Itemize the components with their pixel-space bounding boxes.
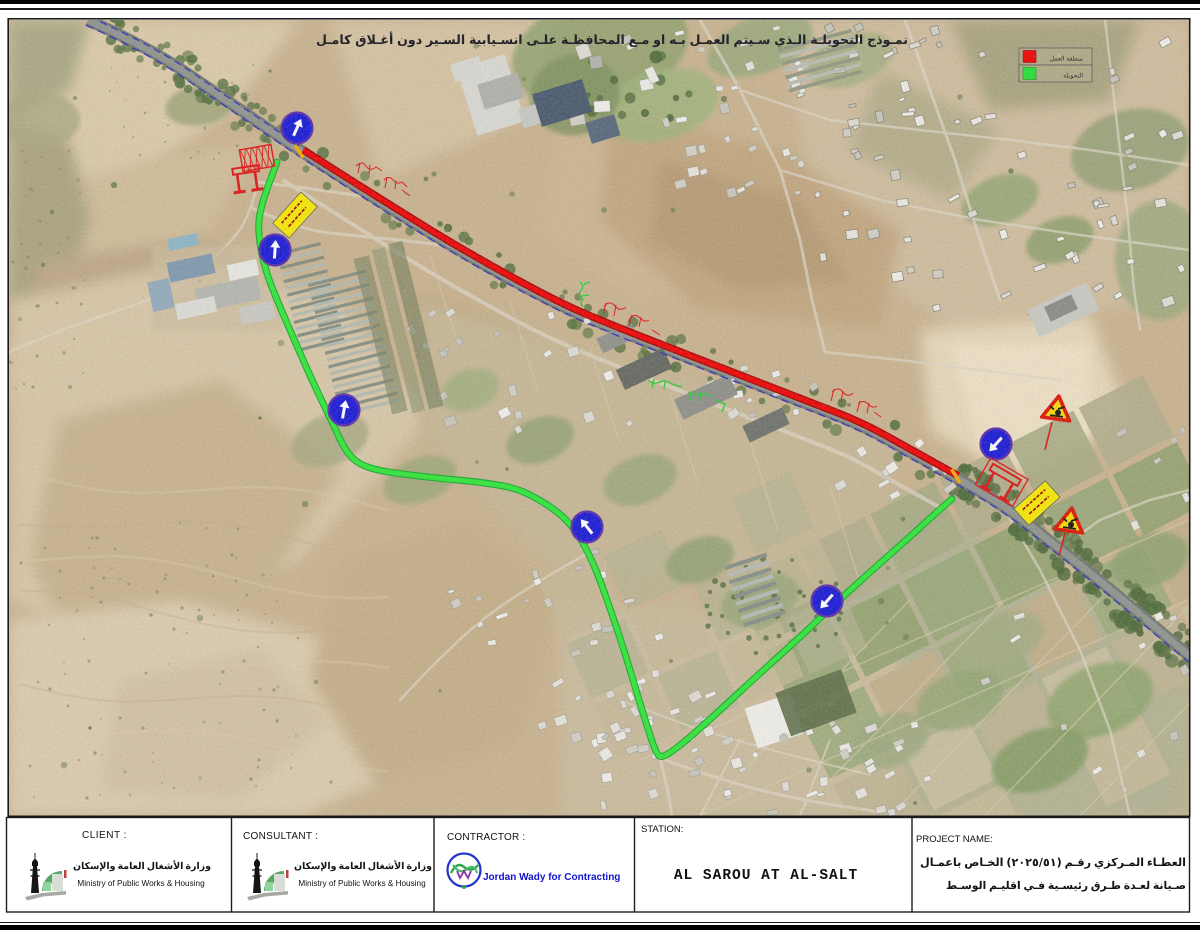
svg-text:Ministry of Public Works & Hou: Ministry of Public Works & Housing — [77, 879, 205, 888]
svg-text:Ministry of Public Works & Hou: Ministry of Public Works & Housing — [298, 879, 426, 888]
svg-text:CLIENT :: CLIENT : — [82, 830, 127, 841]
svg-text:CONSULTANT :: CONSULTANT : — [243, 831, 318, 842]
svg-text:PROJECT NAME:: PROJECT NAME: — [916, 834, 993, 845]
svg-text:Jordan Wady for Contracting: Jordan Wady for Contracting — [483, 872, 620, 883]
svg-text:CONTRACTOR :: CONTRACTOR : — [447, 832, 525, 843]
svg-text:STATION:: STATION: — [641, 824, 683, 835]
svg-text:AL SAROU AT AL-SALT: AL SAROU AT AL-SALT — [674, 868, 858, 884]
